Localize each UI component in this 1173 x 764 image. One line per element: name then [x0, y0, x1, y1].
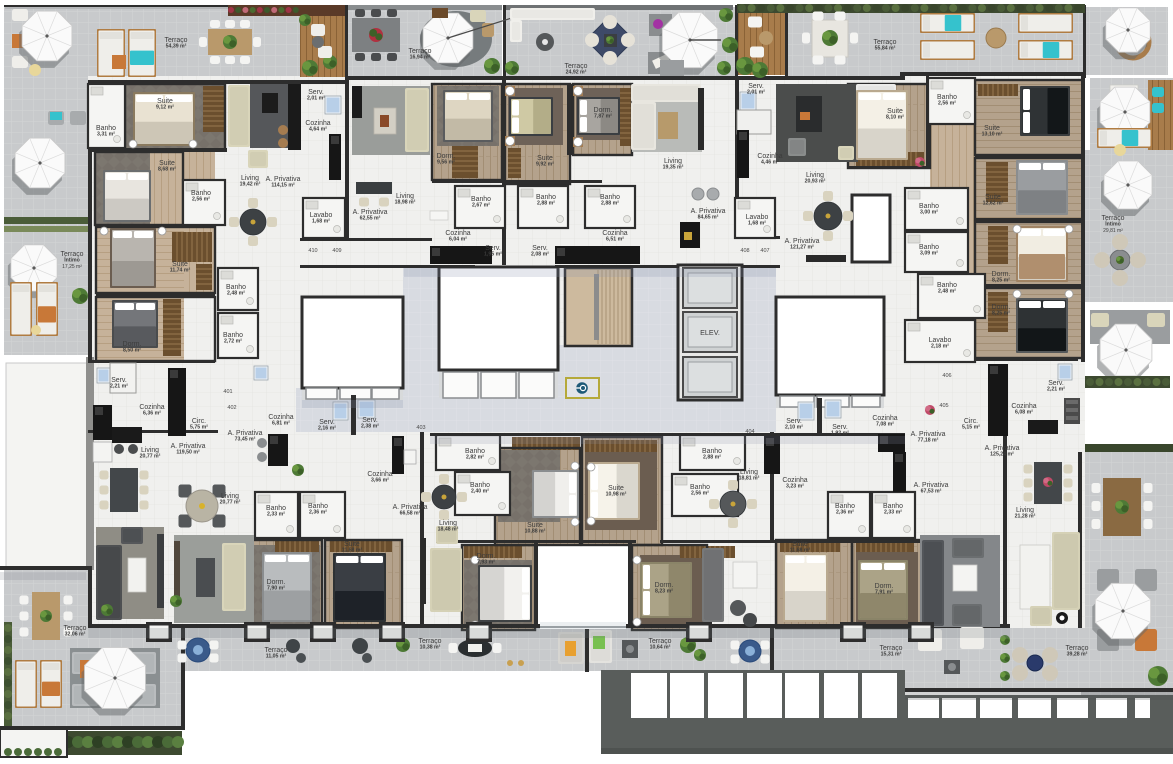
svg-text:2,38 m²: 2,38 m²: [361, 424, 379, 430]
svg-text:125,24 m²: 125,24 m²: [990, 452, 1014, 458]
svg-text:20,77 m²: 20,77 m²: [220, 500, 241, 506]
svg-text:18,98 m²: 18,98 m²: [395, 200, 416, 206]
svg-text:18,48 m²: 18,48 m²: [438, 527, 459, 533]
svg-text:1,68 m²: 1,68 m²: [748, 221, 766, 227]
svg-text:9,56 m²: 9,56 m²: [437, 160, 455, 166]
svg-text:409: 409: [332, 248, 341, 254]
svg-text:54,39 m²: 54,39 m²: [166, 44, 187, 50]
svg-text:8,25 m²: 8,25 m²: [992, 278, 1010, 284]
svg-text:2,36 m²: 2,36 m²: [836, 510, 854, 516]
svg-text:12,62 m²: 12,62 m²: [983, 201, 1004, 207]
svg-text:1,68 m²: 1,68 m²: [312, 219, 330, 225]
svg-text:ELEV.: ELEV.: [700, 328, 720, 337]
svg-text:6,04 m²: 6,04 m²: [449, 237, 467, 243]
svg-text:119,50 m²: 119,50 m²: [176, 450, 200, 456]
svg-text:2,82 m²: 2,82 m²: [466, 455, 484, 461]
svg-text:2,36 m²: 2,36 m²: [309, 510, 327, 516]
svg-text:7,90 m²: 7,90 m²: [267, 586, 285, 592]
svg-text:408: 408: [740, 248, 749, 254]
svg-text:24,92 m²: 24,92 m²: [566, 70, 587, 76]
svg-text:8,68 m²: 8,68 m²: [158, 167, 176, 173]
svg-text:4,64 m²: 4,64 m²: [309, 127, 327, 133]
svg-text:407: 407: [760, 248, 769, 254]
svg-text:2,16 m²: 2,16 m²: [318, 426, 336, 432]
svg-text:55,84 m²: 55,84 m²: [875, 46, 896, 52]
svg-text:Íntimo: Íntimo: [1105, 220, 1121, 228]
svg-text:16,94 m²: 16,94 m²: [410, 55, 431, 61]
svg-text:2,08 m²: 2,08 m²: [531, 252, 549, 258]
svg-text:2,56 m²: 2,56 m²: [192, 197, 210, 203]
svg-text:11,05 m²: 11,05 m²: [266, 654, 287, 660]
svg-text:1,95 m²: 1,95 m²: [484, 252, 502, 258]
svg-text:10,98 m²: 10,98 m²: [606, 492, 627, 498]
svg-text:39,28 m²: 39,28 m²: [1067, 652, 1088, 658]
svg-text:2,01 m²: 2,01 m²: [747, 90, 765, 96]
svg-text:7,87 m²: 7,87 m²: [594, 114, 612, 120]
svg-text:114,15 m²: 114,15 m²: [271, 183, 295, 189]
svg-text:6,81 m²: 6,81 m²: [272, 421, 290, 427]
svg-text:3,09 m²: 3,09 m²: [920, 251, 938, 257]
svg-text:32,06 m²: 32,06 m²: [65, 632, 86, 638]
svg-text:9,92 m²: 9,92 m²: [536, 162, 554, 168]
svg-text:13,10 m²: 13,10 m²: [982, 132, 1003, 138]
svg-text:2,21 m²: 2,21 m²: [110, 384, 128, 390]
svg-text:5,15 m²: 5,15 m²: [962, 425, 980, 431]
svg-text:11,74 m²: 11,74 m²: [170, 268, 191, 274]
svg-text:405: 405: [939, 403, 948, 409]
svg-text:406: 406: [942, 373, 951, 379]
svg-text:403: 403: [416, 425, 425, 431]
svg-text:8,25 m²: 8,25 m²: [992, 311, 1010, 317]
svg-text:19,35 m²: 19,35 m²: [663, 165, 684, 171]
svg-text:1,92 m²: 1,92 m²: [831, 431, 849, 437]
svg-text:404: 404: [745, 429, 754, 435]
svg-text:2,56 m²: 2,56 m²: [691, 491, 709, 497]
svg-text:3,31 m²: 3,31 m²: [97, 132, 115, 138]
svg-text:15,31 m²: 15,31 m²: [881, 652, 902, 658]
svg-text:18,81 m²: 18,81 m²: [739, 476, 760, 482]
svg-text:2,18 m²: 2,18 m²: [931, 344, 949, 350]
svg-text:4,46 m²: 4,46 m²: [761, 160, 779, 166]
svg-text:11,68 m²: 11,68 m²: [790, 548, 811, 554]
svg-text:7,93 m²: 7,93 m²: [477, 560, 495, 566]
svg-text:2,33 m²: 2,33 m²: [884, 510, 902, 516]
svg-text:8,10 m²: 8,10 m²: [886, 115, 904, 121]
svg-text:2,88 m²: 2,88 m²: [601, 201, 619, 207]
svg-text:67,53 m²: 67,53 m²: [921, 489, 942, 495]
svg-text:2,48 m²: 2,48 m²: [227, 291, 245, 297]
svg-text:2,33 m²: 2,33 m²: [267, 512, 285, 518]
svg-text:2,48 m²: 2,48 m²: [938, 289, 956, 295]
svg-text:10,88 m²: 10,88 m²: [525, 529, 546, 535]
svg-text:84,65 m²: 84,65 m²: [698, 215, 719, 221]
svg-text:17,25 m²: 17,25 m²: [62, 264, 82, 270]
svg-text:6,08 m²: 6,08 m²: [1015, 410, 1033, 416]
svg-text:410: 410: [308, 248, 317, 254]
svg-text:8,50 m²: 8,50 m²: [123, 348, 141, 354]
svg-text:2,10 m²: 2,10 m²: [785, 425, 803, 431]
svg-text:401: 401: [223, 389, 232, 395]
svg-text:2,21 m²: 2,21 m²: [1047, 387, 1065, 393]
svg-text:7,08 m²: 7,08 m²: [876, 422, 894, 428]
svg-text:19,42 m²: 19,42 m²: [240, 182, 261, 188]
svg-text:2,88 m²: 2,88 m²: [537, 201, 555, 207]
svg-text:3,23 m²: 3,23 m²: [786, 484, 804, 490]
svg-text:121,27 m²: 121,27 m²: [790, 245, 814, 251]
svg-text:11,68 m²: 11,68 m²: [342, 548, 363, 554]
svg-text:10,38 m²: 10,38 m²: [420, 645, 441, 651]
svg-text:Íntimo: Íntimo: [64, 256, 80, 264]
svg-text:2,56 m²: 2,56 m²: [938, 101, 956, 107]
svg-text:8,23 m²: 8,23 m²: [655, 589, 673, 595]
svg-text:66,58 m²: 66,58 m²: [400, 511, 421, 517]
svg-text:21,28 m²: 21,28 m²: [1015, 514, 1036, 520]
svg-text:20,93 m²: 20,93 m²: [805, 179, 826, 185]
svg-text:3,00 m²: 3,00 m²: [920, 210, 938, 216]
svg-text:7,91 m²: 7,91 m²: [875, 590, 893, 596]
svg-text:29,81 m²: 29,81 m²: [1103, 228, 1123, 234]
svg-text:2,40 m²: 2,40 m²: [471, 489, 489, 495]
svg-text:3,66 m²: 3,66 m²: [371, 478, 389, 484]
svg-text:2,88 m²: 2,88 m²: [703, 455, 721, 461]
svg-text:77,18 m²: 77,18 m²: [918, 438, 939, 444]
svg-text:6,51 m²: 6,51 m²: [606, 237, 624, 243]
svg-text:9,12 m²: 9,12 m²: [156, 105, 174, 111]
svg-text:73,45 m²: 73,45 m²: [235, 437, 256, 443]
svg-text:20,77 m²: 20,77 m²: [140, 454, 161, 460]
svg-text:2,72 m²: 2,72 m²: [224, 339, 242, 345]
svg-text:2,67 m²: 2,67 m²: [472, 203, 490, 209]
svg-text:2,01 m²: 2,01 m²: [307, 96, 325, 102]
svg-text:402: 402: [227, 405, 236, 411]
svg-text:5,75 m²: 5,75 m²: [190, 425, 208, 431]
svg-text:62,55 m²: 62,55 m²: [360, 216, 381, 222]
svg-text:6,36 m²: 6,36 m²: [143, 411, 161, 417]
svg-text:10,64 m²: 10,64 m²: [650, 645, 671, 651]
